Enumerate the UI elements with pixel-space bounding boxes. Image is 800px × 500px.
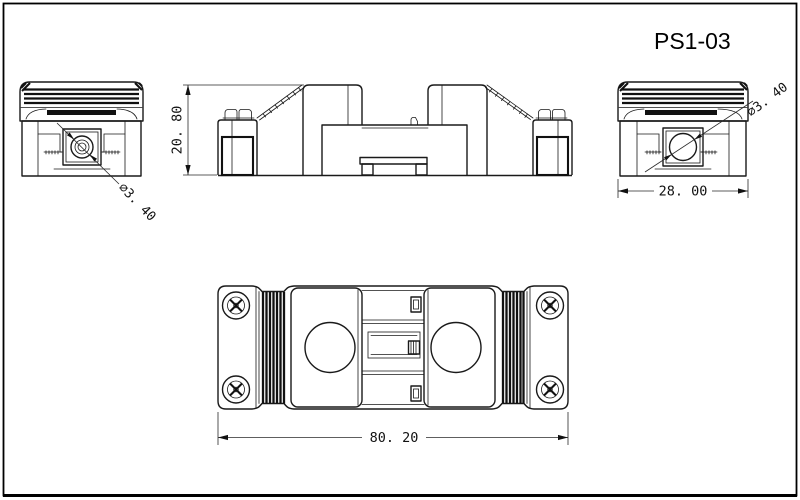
top-slot-outer: [411, 297, 421, 312]
right-rib-lines: [503, 292, 524, 404]
right-block-inner-panel: [537, 137, 568, 175]
sheet-border: [4, 4, 797, 496]
top-slot-inner: [414, 300, 419, 309]
arrow-right: [738, 188, 748, 193]
hole-diameter-label-left: ∅3. 40: [115, 180, 158, 224]
technical-drawing: PS1-03 ∅3. 40 20. 80: [0, 0, 800, 500]
arrow-top: [185, 85, 190, 95]
corner-screw-bottom-left: [223, 376, 250, 403]
right-center-block: [424, 288, 495, 407]
corner-screw-bottom-right: [537, 376, 564, 403]
left-end-view: ∅3. 40: [20, 82, 159, 225]
left-cap-inner-lines: [256, 287, 259, 408]
hole-callout-left: ∅3. 40: [57, 123, 159, 225]
body-outline: [620, 121, 746, 176]
step-hatch-ticks: [645, 151, 717, 154]
left-ramp-ticks: [263, 88, 301, 117]
left-tower: [303, 85, 362, 175]
platform-left-foot: [362, 164, 373, 175]
left-screw-head: [223, 110, 254, 121]
channel-edge-lines: [362, 291, 424, 405]
corner-screw-top-left: [223, 292, 250, 319]
left-block-inner-panel: [222, 137, 253, 175]
end-width-dimension: 28. 00: [618, 179, 748, 200]
overall-length-value: 80. 20: [370, 430, 419, 446]
cap-dark-band: [47, 110, 116, 115]
leader-arrow-upper: [694, 134, 702, 140]
right-large-circle: [431, 323, 481, 373]
right-screw-head: [536, 110, 567, 121]
right-end-view: ∅3. 40: [618, 80, 791, 176]
overall-length-dimension: 80. 20: [218, 412, 568, 446]
arrow-right: [558, 435, 568, 440]
top-view: [218, 286, 568, 409]
cap-rib-lines: [622, 90, 744, 104]
bottom-slot-outer: [411, 386, 421, 401]
hole-diameter-label-right: ∅3. 40: [744, 80, 791, 120]
bottom-slot-inner: [414, 389, 419, 398]
right-tower: [428, 85, 487, 175]
left-end-block: [218, 120, 257, 175]
front-view: [218, 85, 572, 176]
middle-platform: [360, 158, 427, 165]
left-rib-lines: [263, 292, 284, 404]
drawing-sheet: PS1-03 ∅3. 40 20. 80: [0, 0, 800, 500]
cap-outline: [20, 82, 143, 121]
leader-arrow-lower: [90, 155, 97, 162]
body-step-profile: [637, 134, 729, 152]
arrow-left: [218, 435, 228, 440]
channel-band-lines: [362, 320, 424, 375]
arrow-left: [618, 188, 628, 193]
left-center-block: [291, 288, 362, 407]
height-value: 20. 80: [170, 106, 186, 155]
adjust-screw-hatch: [411, 341, 416, 354]
extension-lines: [183, 85, 304, 175]
end-width-value: 28. 00: [659, 184, 708, 200]
corner-screw-top-right: [537, 292, 564, 319]
platform-right-foot: [416, 164, 427, 175]
cap-dark-band: [645, 110, 717, 115]
cap-rib-lines: [24, 90, 139, 104]
part-number: PS1-03: [654, 28, 731, 54]
right-cap-inner-lines: [527, 287, 530, 408]
latch-hook: [411, 118, 418, 126]
right-end-block: [533, 120, 572, 175]
left-large-circle: [305, 323, 355, 373]
middle-channel: [322, 125, 467, 175]
arrow-bottom: [185, 165, 190, 175]
leader-arrow-lower: [664, 154, 672, 160]
adjust-screw: [409, 341, 420, 354]
channel-inner-frame-lines: [371, 336, 417, 355]
cap-outline: [618, 82, 748, 121]
